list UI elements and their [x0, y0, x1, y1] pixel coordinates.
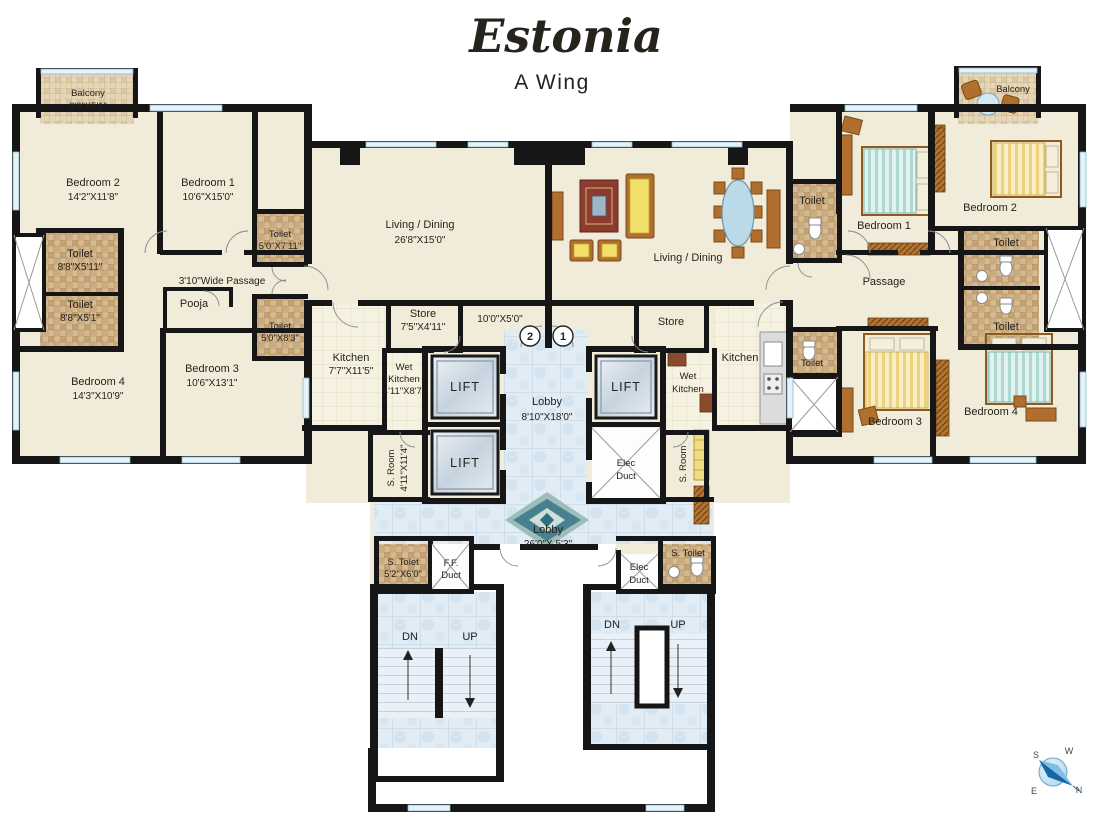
duct-label: Duct — [616, 471, 636, 482]
stair-up-label: UP — [462, 631, 477, 643]
room-dims: 8'8"X5'11" — [58, 262, 103, 273]
room-label: Toilet — [67, 248, 93, 260]
room-label: Toilet — [801, 358, 824, 369]
room-label: Bedroom 3 — [868, 416, 922, 428]
duct-label: Elec — [617, 458, 636, 469]
room-label: Bedroom 4 — [71, 376, 125, 388]
room-label: Living / Dining — [653, 252, 722, 264]
room-dims: 5'2"X6'0" — [384, 569, 422, 580]
lift-label: LIFT — [450, 456, 480, 470]
duct-label: Duct — [629, 575, 649, 586]
lobby-label: Lobby — [533, 524, 563, 536]
duct-label: F.F. — [444, 558, 459, 569]
room-label: Bedroom 1 — [857, 220, 911, 232]
room-label: Toilet — [67, 299, 93, 311]
flat-number: 2 — [527, 331, 533, 343]
room-dims: 7'7"X11'5" — [329, 366, 374, 377]
project-title: Estonia — [467, 9, 663, 63]
duct-label: Elec — [630, 562, 649, 573]
room-dims: 8'8"X5'1" — [60, 313, 100, 324]
wing-subtitle: A Wing — [514, 71, 590, 94]
room-label: S. Room — [386, 449, 397, 486]
room-dims: 8'3"X5'1" — [69, 101, 107, 112]
room-dims: 26'8"X15'0" — [395, 235, 446, 246]
stairs-left — [378, 648, 498, 718]
room-label: Toilet — [269, 229, 292, 240]
room-label: Store — [410, 308, 436, 320]
room-label: Balcony — [996, 84, 1030, 95]
compass-w: W — [1065, 746, 1074, 756]
room-label: Bedroom 4 — [964, 406, 1018, 418]
room-label: S. Toilet — [671, 548, 705, 559]
rug — [580, 180, 618, 232]
lobby-dims: 8'10"X18'0" — [522, 412, 573, 423]
room-label: Pooja — [180, 298, 209, 310]
passage-label: 3'10"Wide Passage — [179, 276, 266, 287]
room-label: Toilet — [269, 321, 292, 332]
room-label: Bedroom 3 — [185, 363, 239, 375]
room-label: Store — [658, 316, 684, 328]
room-label: Toilet — [993, 237, 1019, 249]
room-label: Bedroom 2 — [66, 177, 120, 189]
room-dims: 10'6"X15'0" — [183, 192, 234, 203]
lobby-dims: 26'0"X 5'3" — [524, 539, 573, 550]
lift-label: LIFT — [450, 380, 480, 394]
stairs-right — [591, 628, 709, 706]
room-dims: 4'11"X11'4" — [399, 445, 410, 492]
duct-label: Duct — [441, 570, 461, 581]
passage-dims: 10'0"X5'0" — [477, 314, 523, 325]
room-label: Kitchen — [333, 352, 370, 364]
room-dims: 14'3"X10'9" — [73, 391, 124, 402]
room-label: Toilet — [799, 195, 825, 207]
stair-up-label: UP — [670, 619, 685, 631]
room-dims: 4'11"X8'7" — [383, 386, 425, 397]
room-label: Kitchen — [672, 384, 704, 395]
room-dims: 5'0"X8'3" — [261, 333, 299, 344]
room-label: Toilet — [993, 321, 1019, 333]
room-label: Living / Dining — [385, 219, 454, 231]
floor-plan-page: LIFT LIFT LIFT — [0, 0, 1103, 820]
room-label: Wet — [396, 362, 413, 373]
compass-s: S — [1033, 750, 1039, 760]
room-label: Wet — [680, 371, 697, 382]
stair-dn-label: DN — [604, 619, 620, 631]
floor-plan-drawing: LIFT LIFT LIFT — [0, 0, 1103, 820]
room-dims: 10'6"X13'1" — [187, 378, 238, 389]
lift-label: LIFT — [611, 380, 641, 394]
room-label: Kitchen — [388, 374, 420, 385]
room-label: Balcony — [71, 88, 105, 99]
room-label: S. Room — [678, 445, 689, 482]
room-dims: 14'2"X11'8" — [68, 192, 119, 203]
lift-left-upper: LIFT — [432, 356, 498, 418]
stair-dn-label: DN — [402, 631, 418, 643]
room-label: Bedroom 2 — [963, 202, 1017, 214]
flat-number: 1 — [560, 331, 566, 343]
lift-right: LIFT — [596, 356, 656, 418]
room-label: Passage — [863, 276, 906, 288]
compass-e: E — [1031, 786, 1037, 796]
room-label: Kitchen — [722, 352, 759, 364]
room-dims: 7'5"X4'11" — [401, 322, 446, 333]
room-dims: 5'0"X7'11" — [259, 241, 301, 252]
compass-rose: S W E N — [1031, 746, 1082, 796]
room-label: S. Tolet — [387, 557, 419, 568]
lobby-label: Lobby — [532, 396, 562, 408]
compass-n: N — [1076, 785, 1083, 795]
lift-left-lower: LIFT — [432, 431, 498, 494]
room-label: Bedroom 1 — [181, 177, 235, 189]
